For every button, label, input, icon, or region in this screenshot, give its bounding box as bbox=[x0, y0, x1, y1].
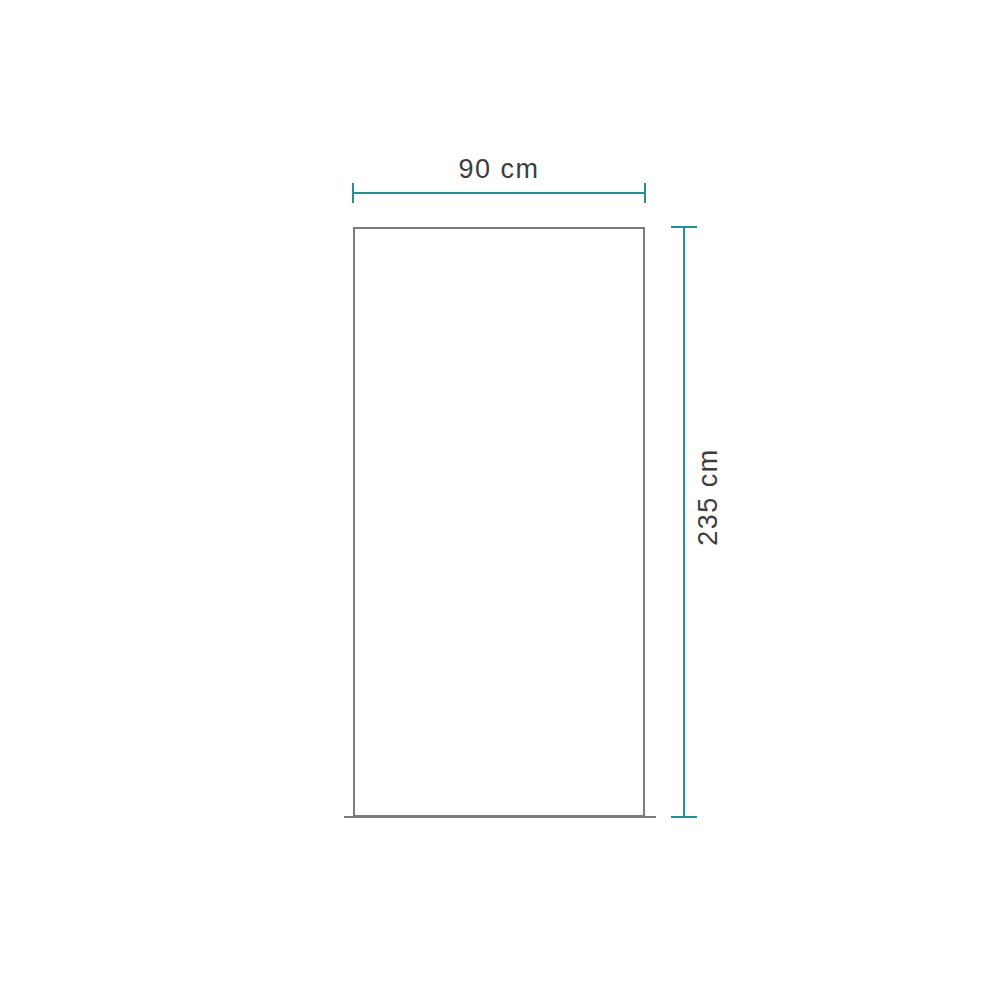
width-dimension-tick-right bbox=[644, 183, 646, 203]
width-dimension-label: 90 cm bbox=[353, 156, 645, 183]
height-dimension-line bbox=[683, 227, 685, 817]
panel-outline bbox=[353, 227, 645, 817]
height-dimension-tick-bottom bbox=[671, 816, 697, 818]
height-dimension-label: 235 cm bbox=[695, 202, 723, 792]
width-dimension-line bbox=[353, 192, 645, 194]
diagram-canvas: 90 cm 235 cm bbox=[0, 0, 1000, 1000]
panel-base-line bbox=[344, 816, 656, 818]
